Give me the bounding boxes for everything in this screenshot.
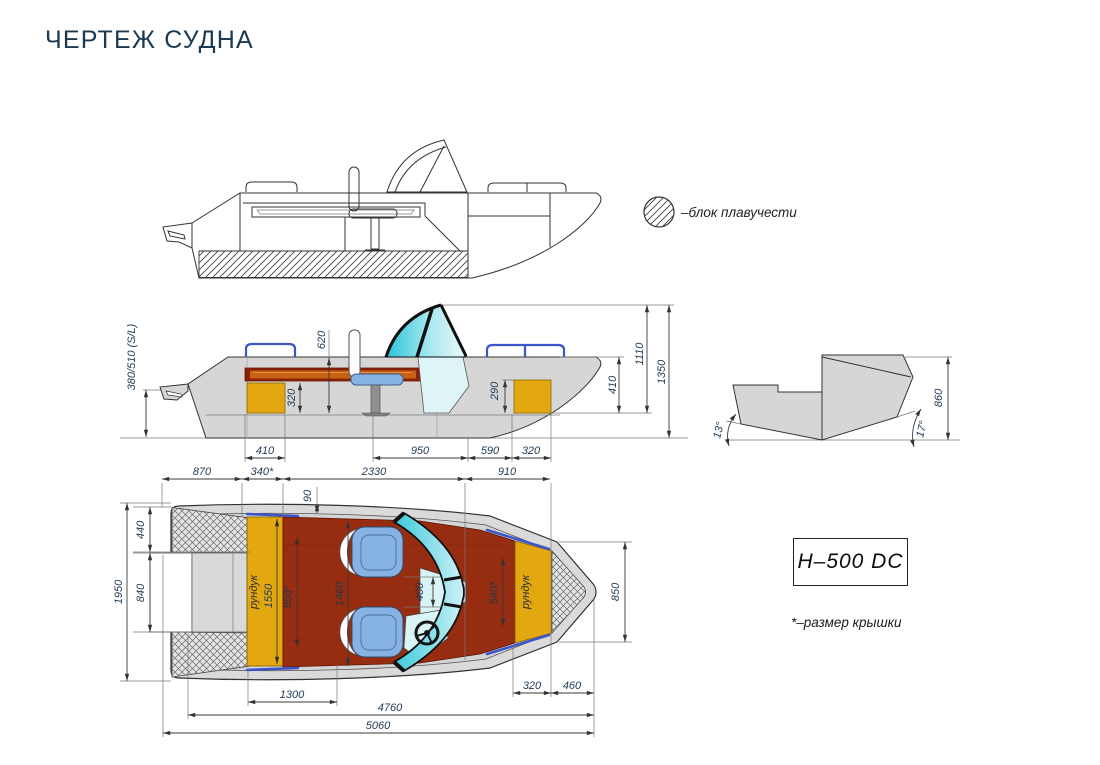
side-view: 380/510 (S/L) 620 320 290 410 1110 1350 … bbox=[115, 295, 700, 470]
transom-hull bbox=[733, 355, 913, 440]
plan-view: 870 340* 2330 910 90 440 840 1950 850 15… bbox=[110, 460, 650, 755]
dim-540: 540* bbox=[488, 581, 500, 604]
dim-950: 950 bbox=[411, 445, 430, 457]
model-badge: H–500 DC bbox=[793, 538, 908, 586]
outline-rails bbox=[246, 182, 566, 192]
boat-drawing-page: ЧЕРТЕЖ СУДНА –блок плавучести bbox=[0, 0, 1100, 765]
legend: –блок плавучести bbox=[635, 185, 885, 235]
dim-400: 400 bbox=[414, 582, 426, 601]
flotation-block-side bbox=[199, 251, 468, 278]
dim-620: 620 bbox=[316, 330, 328, 349]
stern-locker-label: рундук bbox=[248, 574, 260, 610]
bow-locker-label: рундук bbox=[520, 574, 532, 610]
outline-seat bbox=[349, 167, 397, 250]
model-badge-label: H–500 DC bbox=[797, 550, 903, 574]
transom-panels bbox=[192, 553, 247, 632]
dim-460: 460 bbox=[563, 680, 582, 692]
dim-1110: 1110 bbox=[634, 342, 646, 366]
dim-440: 440 bbox=[135, 520, 147, 539]
motor-well bbox=[150, 553, 192, 632]
windshield-side bbox=[386, 305, 466, 357]
dim-deadrise-13: 13° bbox=[711, 420, 727, 440]
bow-locker-side bbox=[514, 380, 551, 413]
dim-950s: 950* bbox=[282, 585, 294, 608]
dim-4760: 4760 bbox=[378, 702, 403, 714]
dim-320-plan: 320 bbox=[523, 680, 542, 692]
dim-290: 290 bbox=[489, 381, 501, 401]
dim-1350: 1350 bbox=[656, 359, 668, 384]
dim-860: 860 bbox=[933, 388, 945, 407]
dim-840: 840 bbox=[135, 583, 147, 602]
outline-side-view bbox=[140, 110, 620, 295]
dim-410-bottom: 410 bbox=[256, 445, 275, 457]
dim-320-side: 320 bbox=[286, 388, 298, 407]
dim-590: 590 bbox=[481, 445, 500, 457]
dim-410-vert: 410 bbox=[607, 375, 619, 394]
dim-transom-height: 380/510 (S/L) bbox=[126, 323, 138, 390]
transom-view: 860 13° 17° bbox=[700, 330, 975, 465]
dim-340: 340* bbox=[251, 466, 274, 478]
dim-320-bottom: 320 bbox=[522, 445, 541, 457]
dim-1460: 1460 bbox=[334, 581, 346, 606]
dim-deadrise-17: 17° bbox=[914, 419, 930, 439]
dim-910: 910 bbox=[498, 466, 517, 478]
dim-2330: 2330 bbox=[361, 466, 387, 478]
dim-90: 90 bbox=[302, 489, 314, 502]
dim-1550: 1550 bbox=[263, 583, 275, 608]
page-title: ЧЕРТЕЖ СУДНА bbox=[45, 26, 254, 55]
dim-850: 850 bbox=[610, 582, 622, 601]
legend-label: –блок плавучести bbox=[680, 205, 797, 220]
dim-1300: 1300 bbox=[280, 689, 305, 701]
dim-5060: 5060 bbox=[366, 720, 391, 732]
stern-locker-side bbox=[247, 383, 285, 413]
outline-windshield bbox=[387, 140, 467, 192]
dim-1950: 1950 bbox=[113, 579, 125, 604]
flotation-legend-swatch bbox=[644, 197, 674, 227]
outline-hull bbox=[163, 193, 601, 278]
footnote: *–размер крышки bbox=[791, 615, 902, 630]
dim-870: 870 bbox=[193, 466, 212, 478]
